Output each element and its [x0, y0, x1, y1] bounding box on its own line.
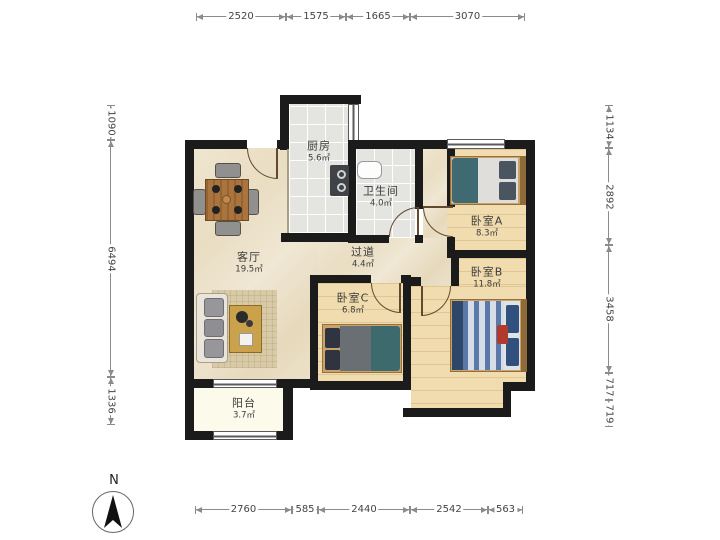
- wall-bottom-right-step-h: [503, 382, 535, 391]
- red-pillow: [497, 325, 508, 344]
- dim-bottom-1: 2760: [195, 509, 292, 510]
- compass-north-label: N: [104, 473, 124, 488]
- bedroom-a-window: [447, 139, 505, 149]
- dining-chair-bottom: [215, 221, 241, 236]
- wall-kitchen-bottom: [281, 233, 348, 242]
- kitchen-window: [348, 104, 359, 141]
- balcony-window: [213, 431, 277, 440]
- wall-top-left: [185, 140, 247, 149]
- dim-left-3: 1336: [110, 377, 111, 425]
- dim-top-1: 2520: [196, 16, 286, 17]
- bedroom-b-floor-bottom: [411, 390, 503, 408]
- wall-bathroom-right: [415, 149, 423, 209]
- bedroom-a-headboard: [520, 156, 526, 205]
- room-label-bedroom-c: 卧室C 6.8㎡: [337, 291, 370, 316]
- plate-icon: [234, 206, 242, 214]
- wall-living-bottom: [277, 379, 310, 388]
- bedroom-c-mattress: [340, 326, 372, 371]
- wall-bedroom-b-connector: [451, 258, 459, 286]
- bedroom-c-blanket: [371, 326, 400, 371]
- wall-bedroom-c-right: [403, 275, 411, 390]
- room-label-hallway: 过道 4.4㎡: [351, 245, 375, 270]
- wall-balcony-top-left: [194, 379, 213, 388]
- dining-chair-top: [215, 163, 241, 178]
- floor-plan: 厨房 5.6㎡ 卫生间 4.0㎡ 客厅 19.5㎡ 过道 4.4㎡ 卧室A 8.…: [0, 0, 720, 540]
- plate-icon: [212, 185, 220, 193]
- wall-bedroom-c-top: [310, 275, 371, 283]
- wall-bedroom-ab-divider: [447, 250, 535, 258]
- sink: [357, 161, 382, 179]
- dim-right-4: 717: [608, 373, 609, 400]
- wall-bedroom-b-bottom: [403, 408, 511, 417]
- dim-top-4: 3070: [410, 16, 525, 17]
- compass: [92, 491, 134, 533]
- plate-icon: [212, 206, 220, 214]
- room-label-bedroom-b: 卧室B 11.8㎡: [471, 265, 504, 290]
- sofa-cushion: [204, 319, 224, 337]
- bedroom-b-blanket-edge: [452, 301, 463, 370]
- dim-right-1: 1134: [608, 105, 609, 148]
- compass-needle-icon: [93, 492, 133, 532]
- sofa-cushion: [204, 298, 224, 317]
- wall-bedroom-c-left: [310, 275, 318, 390]
- pillow: [499, 161, 516, 179]
- bedroom-a-door-leaf: [423, 206, 453, 208]
- plate-icon: [234, 185, 242, 193]
- wall-bathroom-bottom: [348, 235, 389, 243]
- room-label-kitchen: 厨房 5.6㎡: [307, 139, 331, 164]
- dim-right-3: 3458: [608, 245, 609, 373]
- dim-left-2: 6494: [110, 140, 111, 377]
- sofa-cushion: [204, 339, 224, 358]
- dim-bottom-4: 2542: [410, 509, 488, 510]
- table-centerpiece-icon: [222, 195, 231, 204]
- wall-top-middle: [349, 140, 447, 149]
- dim-top-3: 1665: [346, 16, 410, 17]
- pillow: [325, 328, 340, 348]
- dim-top-2: 1575: [286, 16, 346, 17]
- dim-right-2: 2892: [608, 148, 609, 245]
- wall-kitchen-top: [280, 95, 361, 104]
- bathroom-door-leaf: [417, 207, 419, 235]
- bedroom-b-headboard: [521, 299, 527, 372]
- kitchen-partition-line: [287, 149, 289, 233]
- wall-balcony-bottom-right: [277, 431, 293, 440]
- wall-right: [526, 140, 535, 391]
- burner-icon: [337, 183, 346, 192]
- room-label-bathroom: 卫生间 4.0㎡: [363, 184, 399, 209]
- tray-icon: [239, 333, 253, 346]
- dim-bottom-2: 585: [292, 509, 318, 510]
- bedroom-a-blanket: [452, 158, 478, 203]
- dim-right-5: 719: [608, 400, 609, 427]
- dim-bottom-5: 563: [488, 509, 523, 510]
- pillow: [325, 350, 340, 370]
- dim-left-1: 1090: [110, 105, 111, 140]
- wall-left: [185, 140, 194, 440]
- bedroom-c-door-leaf: [399, 283, 401, 313]
- burner-icon: [337, 170, 346, 179]
- entry-door-leaf: [276, 148, 278, 179]
- room-label-living: 客厅 19.5㎡: [235, 250, 262, 275]
- bedroom-b-door-leaf: [421, 286, 423, 316]
- room-label-balcony: 阳台 3.7㎡: [232, 396, 256, 421]
- pillow: [499, 182, 516, 200]
- dim-bottom-3: 2440: [318, 509, 410, 510]
- wall-kitchen-bath-divider: [348, 140, 356, 243]
- balcony-sliding-door: [213, 379, 277, 388]
- wall-bedroom-c-bottom: [310, 381, 411, 390]
- room-label-bedroom-a: 卧室A 8.3㎡: [471, 214, 504, 239]
- cup-icon: [246, 320, 253, 327]
